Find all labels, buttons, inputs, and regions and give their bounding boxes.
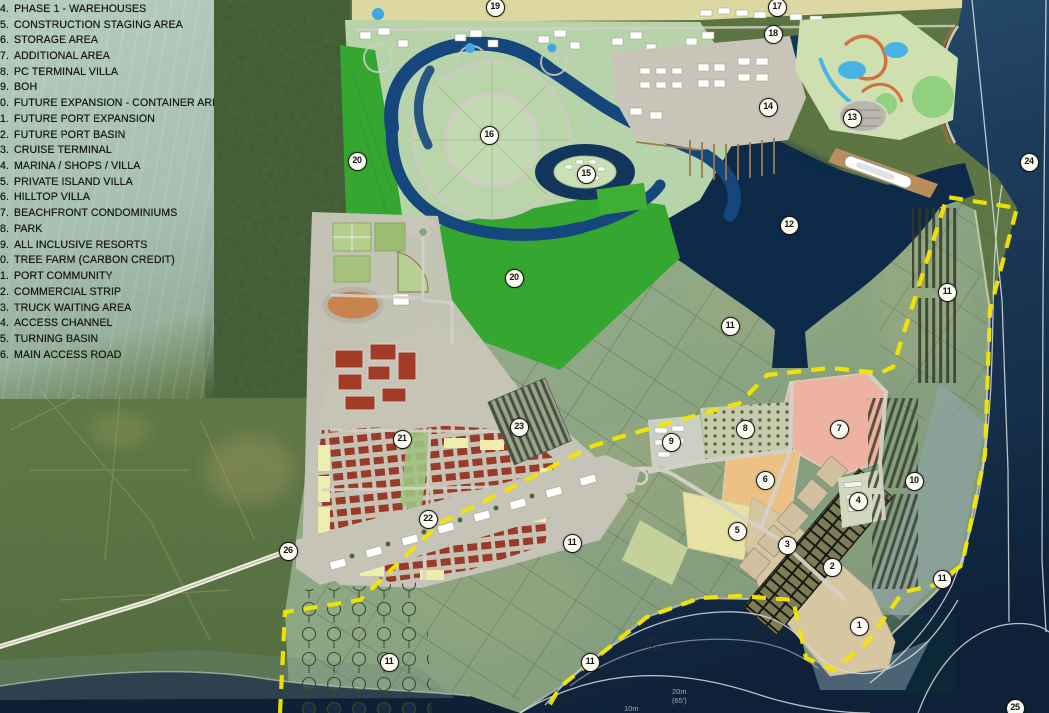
campus-buildings	[335, 344, 416, 410]
legend-item: 5.CONSTRUCTION STAGING AREA	[0, 17, 214, 33]
map-marker-9[interactable]: 9	[662, 433, 681, 452]
map-marker-19[interactable]: 19	[486, 0, 505, 17]
legend-item: 19.ALL INCLUSIVE RESORTS	[0, 237, 214, 253]
map-marker-26[interactable]: 26	[279, 542, 298, 561]
legend-item: 8.PC TERMINAL VILLA	[0, 64, 214, 80]
legend-item: 17.BEACHFRONT CONDOMINIUMS	[0, 205, 214, 221]
map-marker-1[interactable]: 1	[850, 617, 869, 636]
legend-item: 18.PARK	[0, 221, 214, 237]
legend-item: 10.FUTURE EXPANSION - CONTAINER AREA	[0, 95, 214, 111]
map-marker-4[interactable]: 4	[849, 492, 868, 511]
map-marker-11[interactable]: 11	[563, 534, 582, 553]
map-marker-16[interactable]: 16	[480, 126, 499, 145]
map-marker-2[interactable]: 2	[823, 558, 842, 577]
map-marker-11[interactable]: 11	[581, 653, 600, 672]
legend-item: 21.PORT COMMUNITY	[0, 268, 214, 284]
map-marker-10[interactable]: 10	[905, 472, 924, 491]
legend-item: 20.TREE FARM (CARBON CREDIT)	[0, 253, 214, 269]
map-marker-11[interactable]: 11	[721, 317, 740, 336]
legend-item: 23.TRUCK WAITING AREA	[0, 300, 214, 316]
map-marker-11[interactable]: 11	[933, 570, 952, 589]
legend-list: 4.PHASE 1 - WAREHOUSES5.CONSTRUCTION STA…	[0, 1, 214, 363]
legend-item: 24.ACCESS CHANNEL	[0, 315, 214, 331]
depth-label: 20m (65')	[672, 688, 687, 705]
legend-item: 15.PRIVATE ISLAND VILLA	[0, 174, 214, 190]
legend-item: 25.TURNING BASIN	[0, 331, 214, 347]
legend-item: 4.PHASE 1 - WAREHOUSES	[0, 1, 214, 17]
map-marker-21[interactable]: 21	[393, 430, 412, 449]
map-marker-11[interactable]: 11	[380, 653, 399, 672]
legend-item: 11.FUTURE PORT EXPANSION	[0, 111, 214, 127]
map-marker-17[interactable]: 17	[768, 0, 787, 17]
map-marker-12[interactable]: 12	[780, 216, 799, 235]
map-marker-15[interactable]: 15	[577, 165, 596, 184]
legend-panel: 4.PHASE 1 - WAREHOUSES5.CONSTRUCTION STA…	[0, 0, 214, 399]
legend-item: 7.ADDITIONAL AREA	[0, 48, 214, 64]
map-marker-8[interactable]: 8	[736, 420, 755, 439]
map-marker-6[interactable]: 6	[756, 471, 775, 490]
map-marker-5[interactable]: 5	[728, 522, 747, 541]
legend-item: 26.MAIN ACCESS ROAD	[0, 347, 214, 363]
legend-item: 22.COMMERCIAL STRIP	[0, 284, 214, 300]
map-marker-3[interactable]: 3	[778, 536, 797, 555]
legend-item: 6.STORAGE AREA	[0, 32, 214, 48]
tree-planting-rows	[292, 582, 432, 713]
map-marker-20[interactable]: 20	[348, 152, 367, 171]
map-marker-25[interactable]: 25	[1006, 699, 1025, 713]
legend-item: 9.BOH	[0, 80, 214, 96]
site-plan-screenshot: 1917181413162024151220111123872196104225…	[0, 0, 1049, 713]
map-marker-20[interactable]: 20	[505, 269, 524, 288]
map-marker-22[interactable]: 22	[419, 510, 438, 529]
map-marker-13[interactable]: 13	[843, 109, 862, 128]
legend-item: 14.MARINA / SHOPS / VILLA	[0, 158, 214, 174]
map-marker-24[interactable]: 24	[1020, 153, 1039, 172]
map-marker-14[interactable]: 14	[759, 98, 778, 117]
map-marker-23[interactable]: 23	[510, 418, 529, 437]
legend-item: 16.HILLTOP VILLA	[0, 190, 214, 206]
legend-item: 13.CRUISE TERMINAL	[0, 142, 214, 158]
depth-label: 5m (16')	[648, 636, 663, 653]
map-marker-11[interactable]: 11	[938, 283, 957, 302]
map-marker-7[interactable]: 7	[830, 420, 849, 439]
map-marker-18[interactable]: 18	[764, 25, 783, 44]
depth-label: 10m	[624, 705, 639, 713]
legend-item: 12.FUTURE PORT BASIN	[0, 127, 214, 143]
